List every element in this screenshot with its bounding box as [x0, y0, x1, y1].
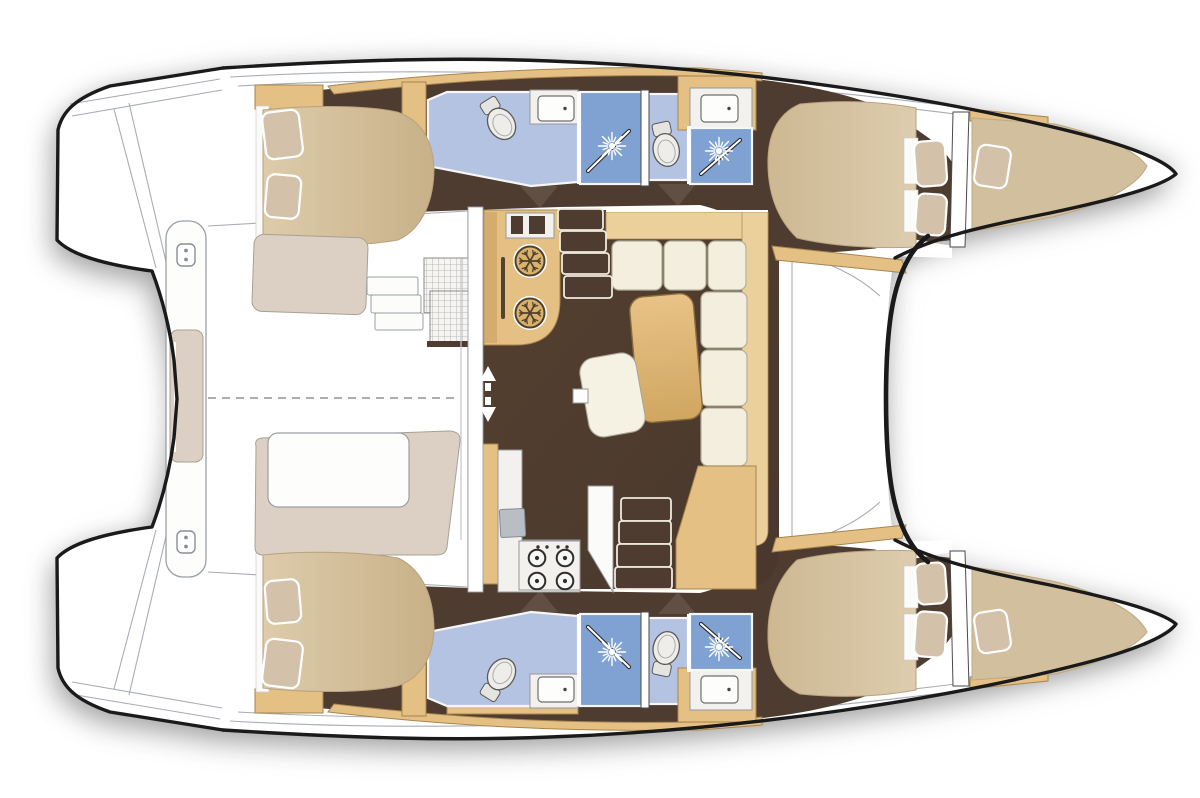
- snowflake-branch: [533, 251, 534, 255]
- stove-burner-center: [535, 556, 539, 560]
- sink-basin: [538, 677, 574, 702]
- starboard-aft-pad: [268, 433, 409, 507]
- snowflake-branch: [533, 267, 534, 271]
- shower-rose: [609, 649, 615, 655]
- cleat-horn: [184, 536, 188, 540]
- step-tread: [562, 253, 609, 274]
- sofa-cushion: [708, 241, 746, 290]
- sofa-cushion: [701, 408, 747, 466]
- sink-faucet: [563, 688, 566, 691]
- stove-knob: [556, 545, 559, 548]
- saloon-aft-wall: [468, 207, 483, 592]
- starboard-aft-shelf: [255, 689, 323, 713]
- fridge-icon: [514, 297, 546, 329]
- shower-head-icon: [706, 634, 733, 661]
- cleat-horn: [184, 258, 188, 262]
- shower-wall: [577, 614, 581, 706]
- sink-basin: [538, 96, 574, 121]
- snowflake-branch: [527, 251, 528, 255]
- cleat-icon: [177, 531, 195, 553]
- stove-knob: [565, 545, 568, 548]
- step-tread: [371, 295, 421, 313]
- fridge-icon: [514, 245, 546, 277]
- cleat-icon: [177, 244, 195, 266]
- pillow-port-aft-cabin: [264, 174, 302, 220]
- step-tread: [564, 276, 612, 298]
- pillow-starboard-aft-cabin: [261, 638, 303, 689]
- arrow-stem: [485, 397, 491, 405]
- cockpit-side-steps: [367, 277, 423, 330]
- pillow-starboard-forward-cabin: [913, 611, 947, 658]
- starboard-companionway-steps: [615, 498, 672, 589]
- shower-head-icon: [706, 138, 733, 165]
- microwave-icon: [529, 216, 545, 234]
- port-aft-shelf: [255, 85, 323, 109]
- shower-head-icon: [599, 639, 626, 666]
- starboard-forward-bed: [768, 550, 916, 696]
- step-tread: [560, 231, 606, 252]
- snowflake-branch: [527, 267, 528, 271]
- shower-wall: [687, 614, 691, 672]
- shower-rose: [716, 148, 722, 154]
- sofa-cushion: [701, 292, 747, 348]
- stove-knob: [536, 545, 539, 548]
- sofa-cushion: [612, 241, 662, 290]
- step-tread: [367, 277, 418, 295]
- cockpit-seat-port: [252, 234, 369, 315]
- stove-burner-center: [535, 579, 539, 583]
- snowflake-branch: [533, 303, 534, 307]
- snowflake-branch: [527, 303, 528, 307]
- port-forward-bed: [768, 102, 916, 248]
- shower-head-icon: [599, 133, 626, 160]
- stove-knob: [545, 545, 548, 548]
- step-tread: [621, 498, 671, 521]
- snowflake-branch: [527, 319, 528, 323]
- snowflake-branch: [533, 319, 534, 323]
- step-tread: [619, 521, 671, 544]
- pillow-starboard-aft-cabin: [264, 579, 302, 625]
- shower-wall: [577, 92, 581, 184]
- stove-burner-center: [563, 579, 567, 583]
- galley-counter-edge: [484, 212, 497, 343]
- sofa-cushion: [701, 350, 747, 406]
- sink-basin: [701, 95, 738, 122]
- oven-icon: [511, 216, 523, 234]
- sofa-cushion: [664, 241, 706, 290]
- shower-rose: [609, 143, 615, 149]
- catamaran-floor-plan: [0, 0, 1200, 798]
- step-tread: [617, 544, 671, 567]
- pillow-port-forward-cabin: [915, 193, 948, 236]
- forward-crossbeam-outline: [886, 236, 928, 562]
- sink-faucet: [727, 107, 730, 110]
- head-partition-wall: [641, 90, 649, 186]
- galley-handle: [501, 257, 505, 319]
- grate-sill: [427, 341, 474, 347]
- head-partition-wall: [641, 612, 649, 708]
- sink-faucet: [727, 688, 730, 691]
- sink-basin: [701, 676, 738, 703]
- step-tread: [558, 209, 603, 230]
- step-tread: [375, 313, 423, 330]
- shower-rose: [716, 644, 722, 650]
- shower-wall: [687, 126, 691, 184]
- cleat-horn: [184, 249, 188, 253]
- pillow-starboard-forward-cabin: [915, 562, 948, 605]
- cleat-horn: [184, 545, 188, 549]
- sink-faucet: [563, 107, 566, 110]
- stove-burner-center: [563, 556, 567, 560]
- pillow-port-forward-cabin: [913, 140, 947, 187]
- pillow-starboard-forepeak-berth: [973, 609, 1012, 655]
- galley-wood-strip: [482, 444, 498, 584]
- mast-post: [573, 389, 588, 403]
- pillow-port-forepeak-berth: [973, 144, 1012, 190]
- step-tread: [615, 567, 672, 589]
- galley-sink: [499, 508, 525, 537]
- pillow-port-aft-cabin: [261, 109, 303, 160]
- arrow-stem: [485, 383, 491, 391]
